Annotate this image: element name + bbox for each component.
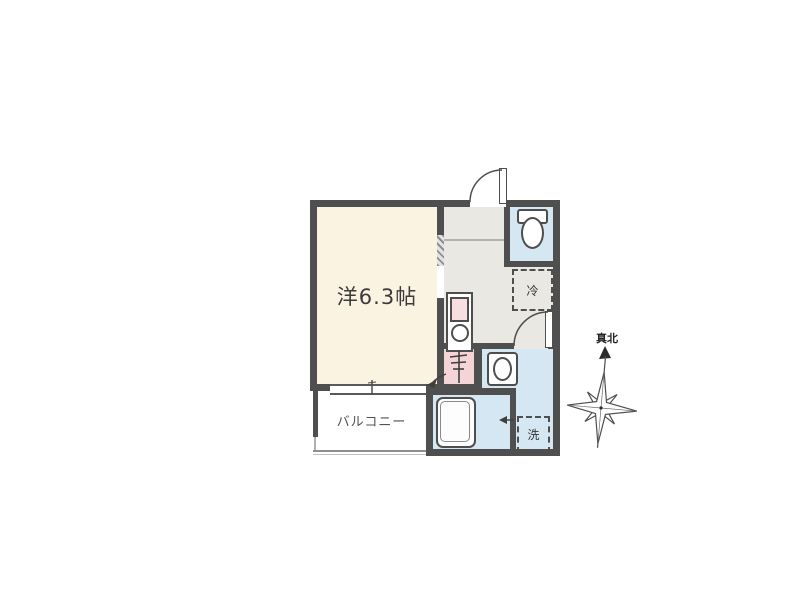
- wall-toilet-left: [504, 207, 510, 267]
- washbasin-bowl: [493, 357, 512, 381]
- wall-top-left: [310, 200, 470, 207]
- entrance-door-arc: [470, 170, 502, 202]
- toilet-icon: [515, 208, 549, 252]
- wall-left: [310, 200, 317, 391]
- wall-room-bottom-left: [310, 384, 330, 391]
- wall-heater-right: [474, 349, 482, 391]
- entrance-step-line: [444, 239, 504, 241]
- balcony-rail-bottom: [313, 450, 426, 452]
- washbasin: [487, 352, 518, 386]
- balcony-label: バルコニー: [317, 391, 426, 450]
- bathtub-inner-rim: [440, 401, 470, 442]
- wall-toilet-bottom: [504, 261, 553, 267]
- wall-divider-bottom: [437, 298, 444, 391]
- washer-space: 洗: [517, 416, 550, 453]
- refrigerator-label: 冷: [526, 282, 538, 299]
- water-heater-column: [444, 349, 474, 384]
- wall-top-right: [506, 200, 560, 207]
- refrigerator-space: 冷: [512, 269, 553, 311]
- washer-label: 洗: [527, 426, 539, 443]
- balcony-rail-outer: [313, 454, 426, 455]
- kitchen-sink-bowl-icon: [451, 324, 469, 342]
- kitchen-sink-unit: [446, 292, 473, 352]
- wall-divider-top: [437, 200, 444, 235]
- main-room-label: 洋6.3帖: [317, 207, 437, 384]
- compass-rose: [564, 346, 642, 451]
- washroom-door-leaf: [545, 311, 553, 348]
- entrance-door-leaf: [499, 168, 507, 204]
- wall-divider-hatch: [437, 235, 444, 266]
- floorplan-canvas: 冷 洗 洋6.3帖 バルコニー 真北: [0, 0, 800, 609]
- north-arrowhead: [599, 346, 611, 359]
- toilet-bowl: [521, 217, 544, 249]
- bathroom-block: [426, 388, 516, 456]
- kitchen-counter: [450, 297, 469, 322]
- bathtub: [436, 397, 476, 448]
- wall-right: [553, 200, 560, 456]
- true-north-label: 真北: [591, 331, 623, 345]
